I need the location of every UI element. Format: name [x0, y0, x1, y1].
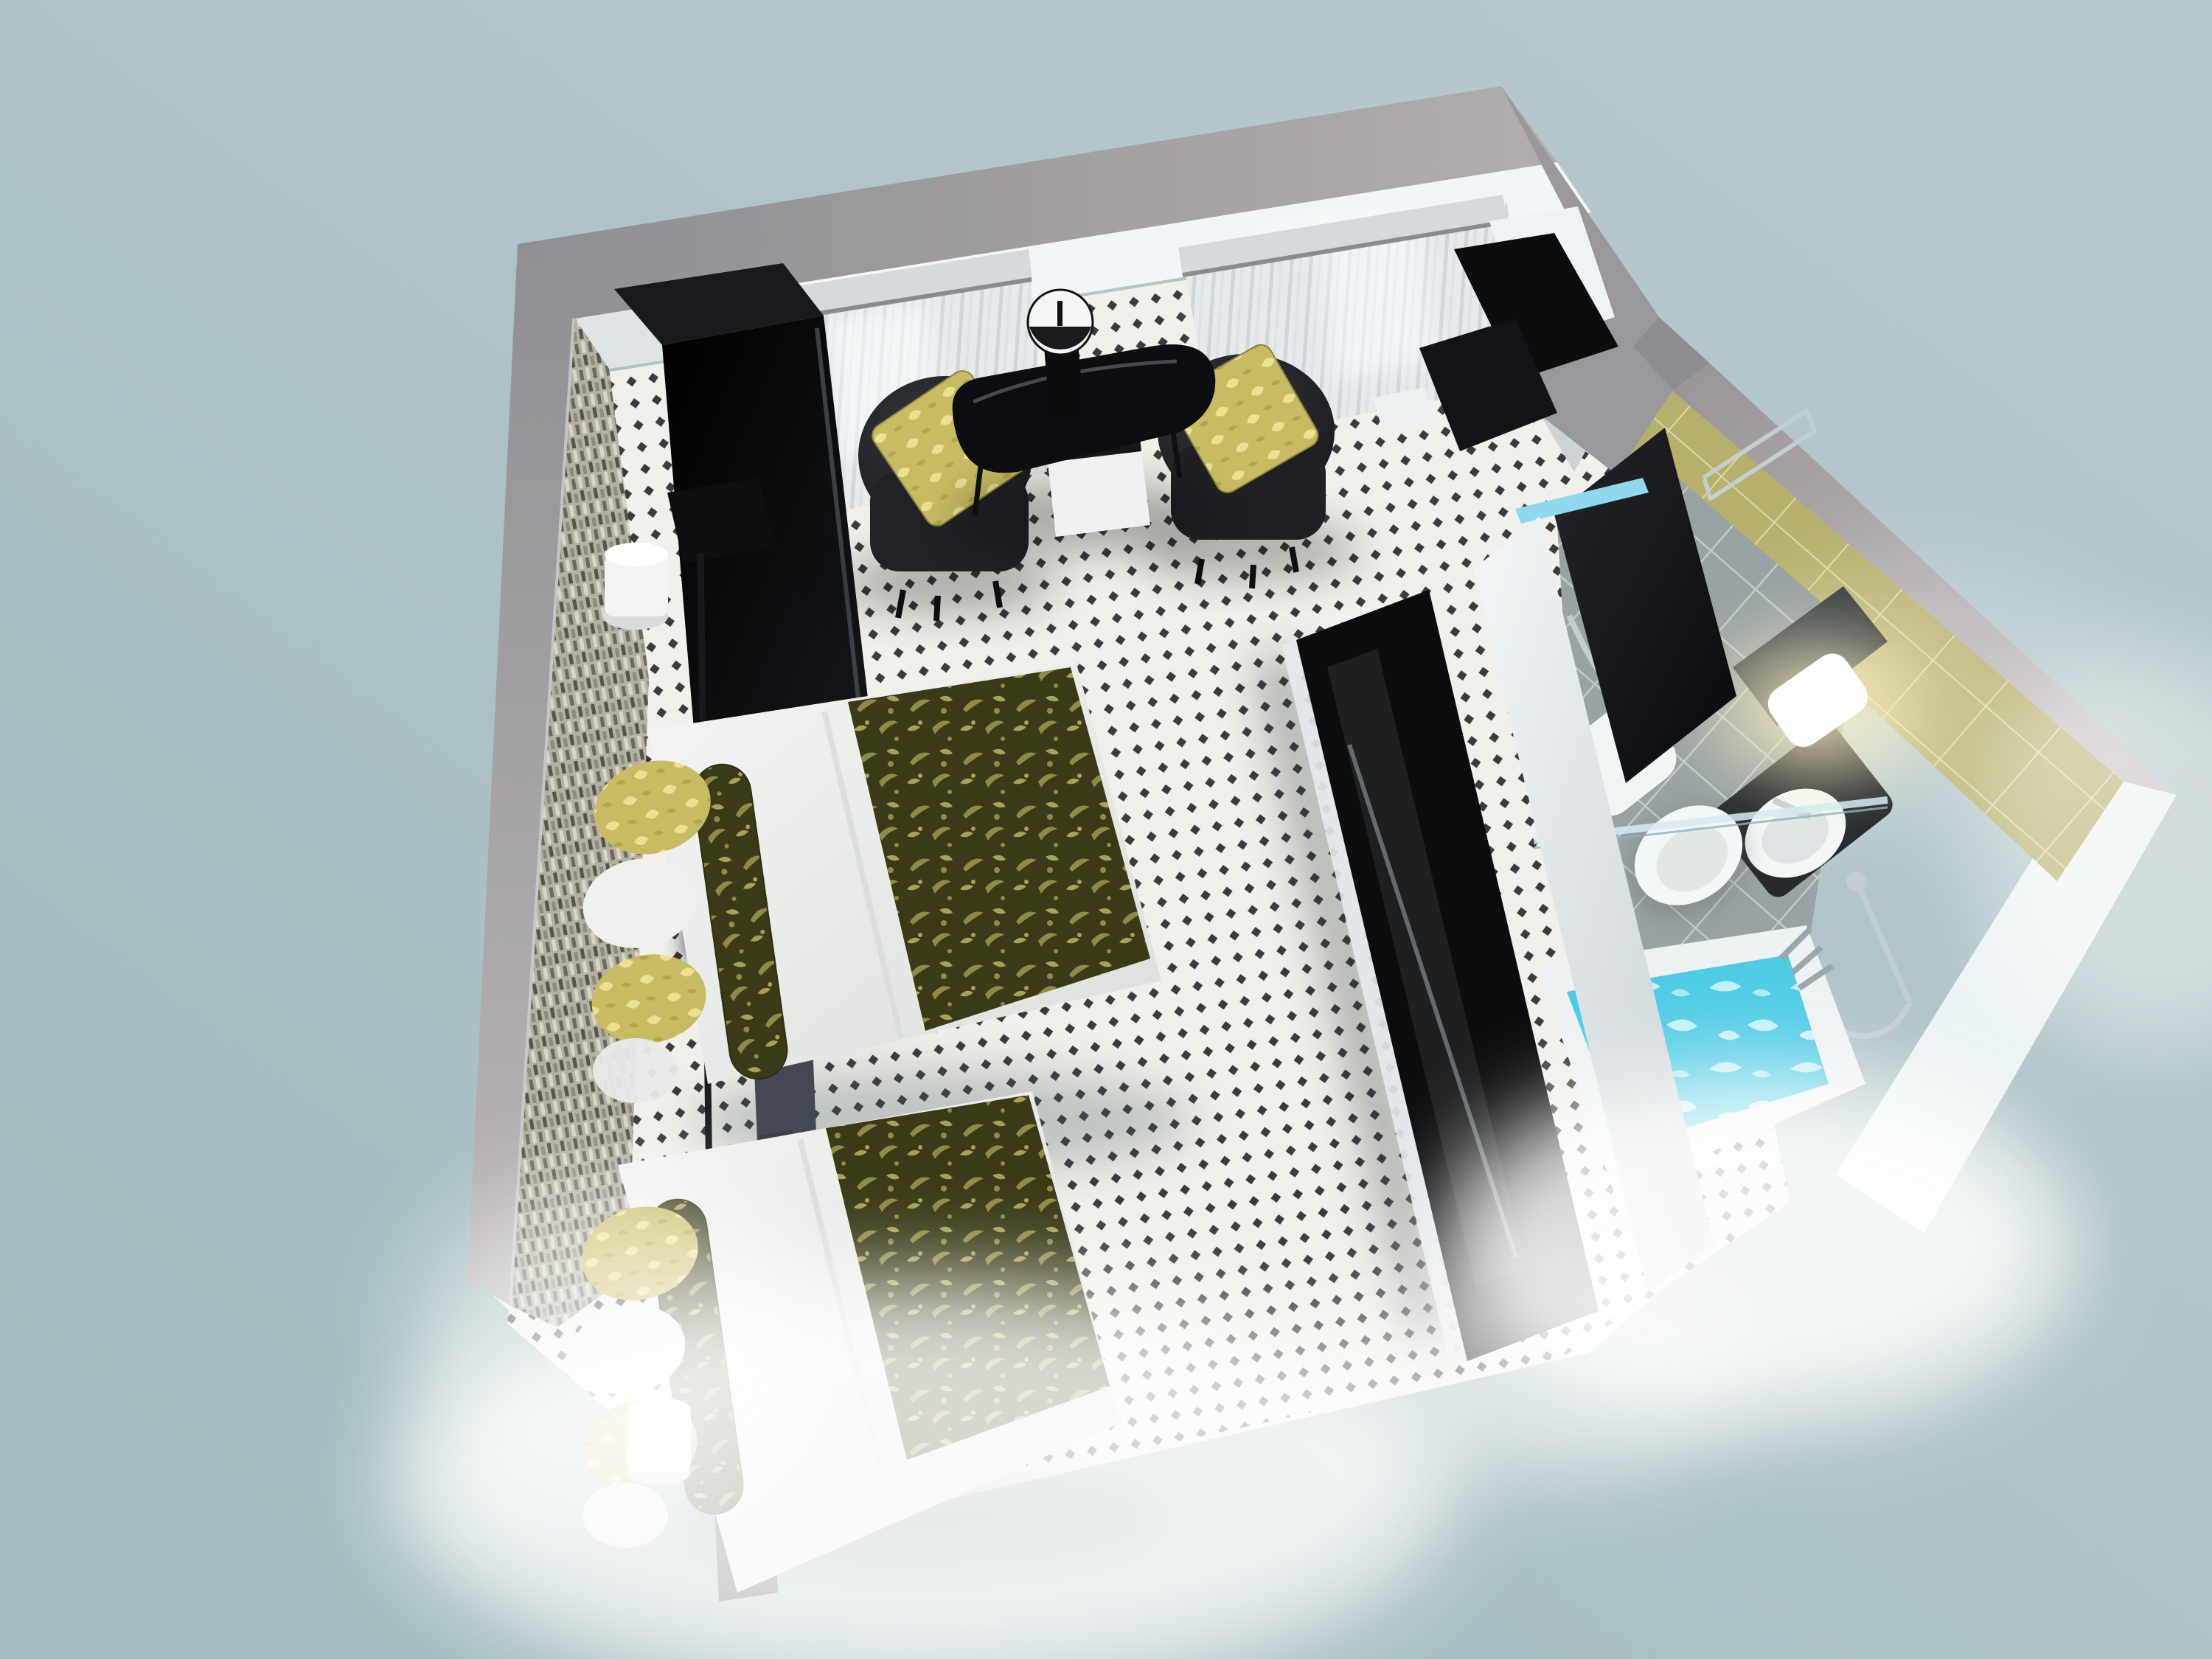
fog-bedroom-left — [413, 1180, 796, 1504]
bed1-white-pillow-small — [593, 1038, 678, 1103]
fog-bathroom-bottom — [1438, 1069, 2072, 1423]
reading-lamp1-top — [605, 543, 668, 566]
shower-head-icon — [1846, 872, 1867, 892]
floorplan-render: 3D cutaway floor plan of a twin hotel ro… — [0, 0, 2212, 1659]
reading-lamp-1 — [603, 543, 668, 630]
table-lamp-finial — [1057, 301, 1062, 326]
floorplan-svg: 3D cutaway floor plan of a twin hotel ro… — [0, 0, 2212, 1659]
